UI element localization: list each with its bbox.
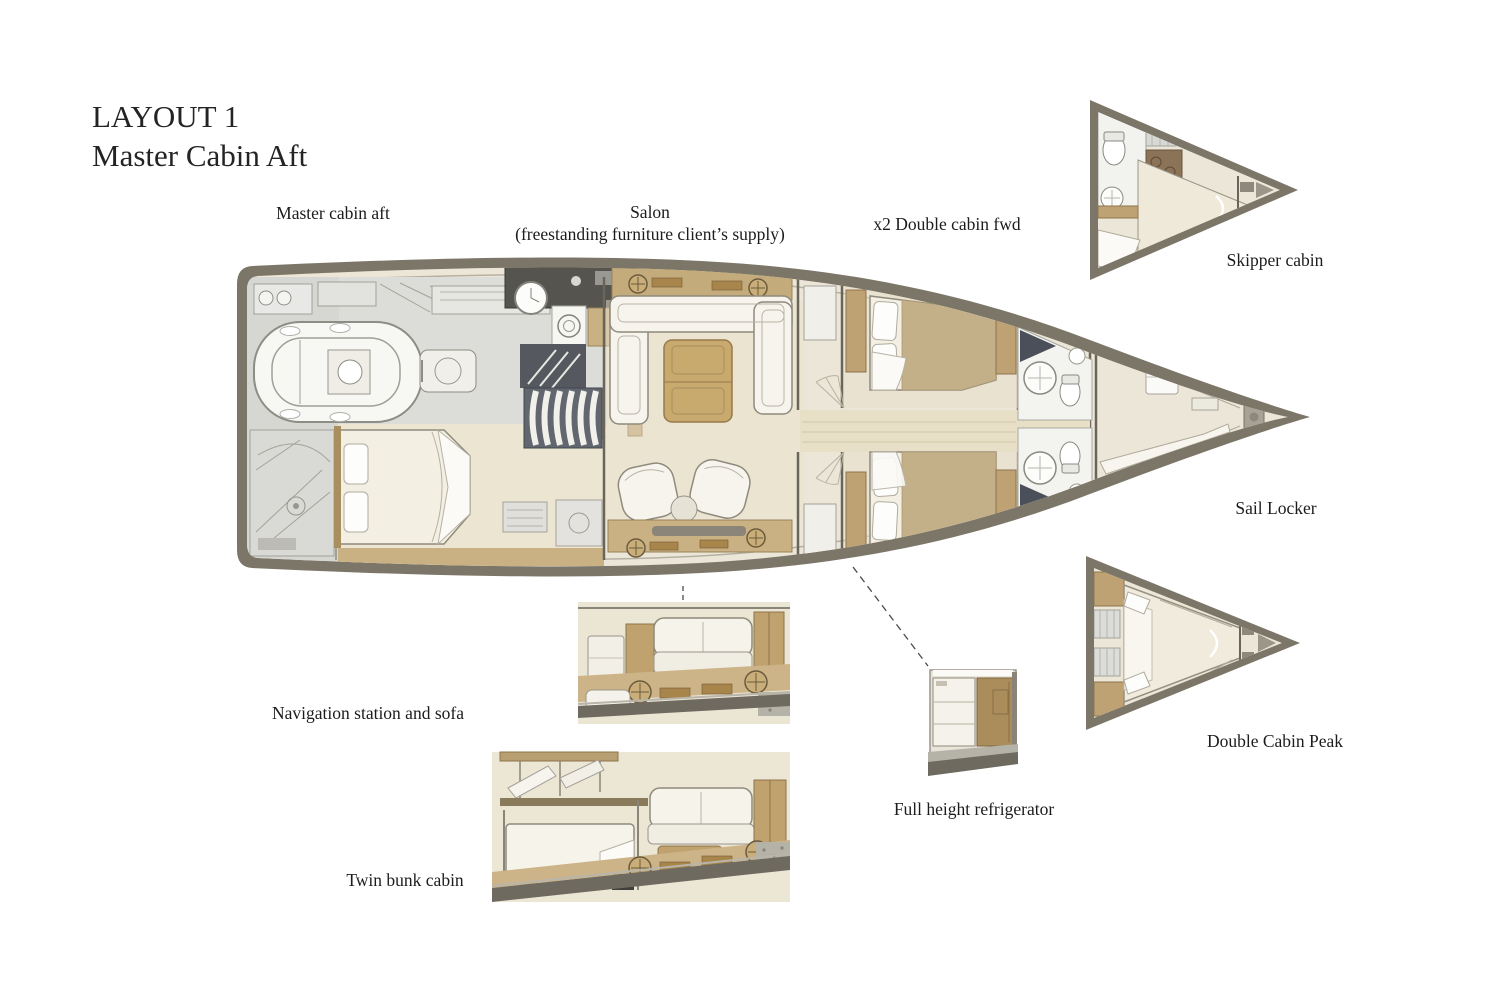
label-navigation-station: Navigation station and sofa xyxy=(272,703,464,725)
salon-table xyxy=(664,340,732,422)
sink xyxy=(1069,348,1085,364)
label-salon-line1: Salon xyxy=(515,202,785,224)
label-master-cabin-aft: Master cabin aft xyxy=(276,203,390,225)
label-sail-locker: Sail Locker xyxy=(1235,498,1316,520)
label-double-cabin-fwd: x2 Double cabin fwd xyxy=(873,214,1020,236)
fridge-door-white xyxy=(933,678,975,746)
label-double-cabin-peak: Double Cabin Peak xyxy=(1207,731,1343,753)
page-title-line1: LAYOUT 1 xyxy=(92,97,307,136)
page-title-line2: Master Cabin Aft xyxy=(92,136,307,175)
navigation-station-inset xyxy=(578,586,790,724)
label-salon-line2: (freestanding furniture client’s supply) xyxy=(515,224,785,246)
twin-bunk-cabin-inset xyxy=(492,752,790,902)
salon xyxy=(606,266,804,557)
page-title: LAYOUT 1 Master Cabin Aft xyxy=(92,97,307,175)
yacht-layout-page: LAYOUT 1 Master Cabin Aft Master cabin a… xyxy=(0,0,1500,1000)
label-skipper-cabin: Skipper cabin xyxy=(1227,250,1324,272)
nav-sofa xyxy=(654,618,752,674)
label-twin-bunk-cabin: Twin bunk cabin xyxy=(346,870,463,892)
label-full-height-refrigerator: Full height refrigerator xyxy=(894,799,1054,821)
label-salon: Salon (freestanding furniture client’s s… xyxy=(515,202,785,245)
side-table xyxy=(671,496,697,522)
double-cabin-peak-inset xyxy=(1086,556,1300,730)
main-deck-plan xyxy=(237,258,1310,577)
refrigerator-inset xyxy=(853,567,1018,776)
